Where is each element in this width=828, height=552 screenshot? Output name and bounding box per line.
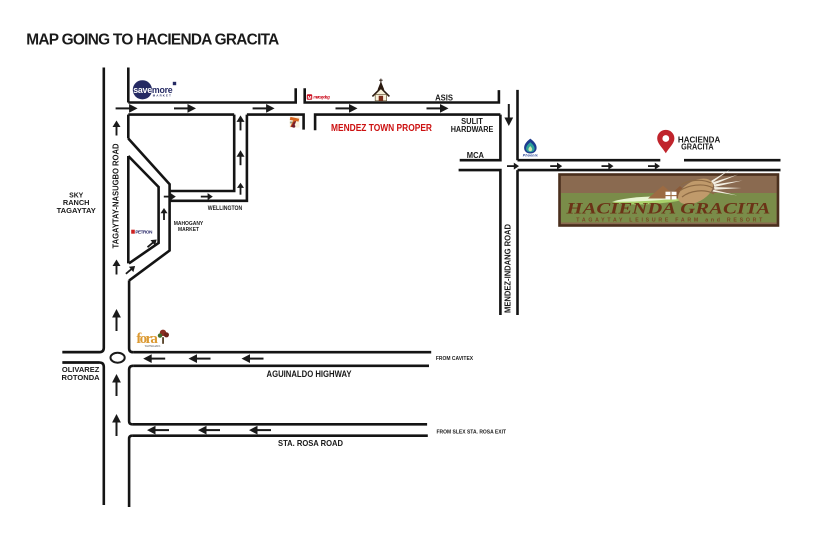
svg-text:MCA: MCA (467, 150, 484, 160)
svg-text:GRACITA: GRACITA (681, 142, 714, 152)
svg-text:PETRON: PETRON (135, 230, 153, 235)
svg-text:HACIENDA GRACITA: HACIENDA GRACITA (565, 200, 771, 218)
svg-text:WELLINGTON: WELLINGTON (208, 205, 243, 212)
svg-text:HARDWARE: HARDWARE (451, 125, 494, 134)
svg-text:FROM CAVITEX: FROM CAVITEX (436, 356, 473, 362)
svg-text:Phoenix: Phoenix (523, 153, 539, 157)
svg-text:AGUINALDO HIGHWAY: AGUINALDO HIGHWAY (267, 369, 353, 379)
svg-text:M: M (308, 95, 312, 100)
svg-text:TAGAYTAY HIGHLANDS: TAGAYTAY HIGHLANDS (144, 344, 160, 348)
svg-text:mercury drug: mercury drug (313, 95, 330, 100)
svg-text:FROM SLEX STA. ROSA EXIT: FROM SLEX STA. ROSA EXIT (437, 430, 507, 436)
svg-text:STA. ROSA ROAD: STA. ROSA ROAD (278, 439, 343, 448)
svg-text:MARKET: MARKET (178, 227, 199, 233)
svg-text:ASIS: ASIS (435, 93, 453, 102)
svg-text:ROTONDA: ROTONDA (62, 373, 101, 382)
svg-text:MENDEZ-INDANG ROAD: MENDEZ-INDANG ROAD (503, 224, 512, 313)
svg-text:MAP GOING TO HACIENDA GRACITA: MAP GOING TO HACIENDA GRACITA (26, 31, 279, 48)
svg-text:MARKET: MARKET (153, 93, 172, 97)
svg-text:MAHOGANY: MAHOGANY (174, 221, 204, 227)
svg-text:TAGAYTAY-NASUGBO ROAD: TAGAYTAY-NASUGBO ROAD (112, 143, 121, 248)
svg-text:TAGAYTAY: TAGAYTAY (57, 206, 96, 215)
svg-text:MENDEZ TOWN PROPER: MENDEZ TOWN PROPER (331, 123, 433, 134)
